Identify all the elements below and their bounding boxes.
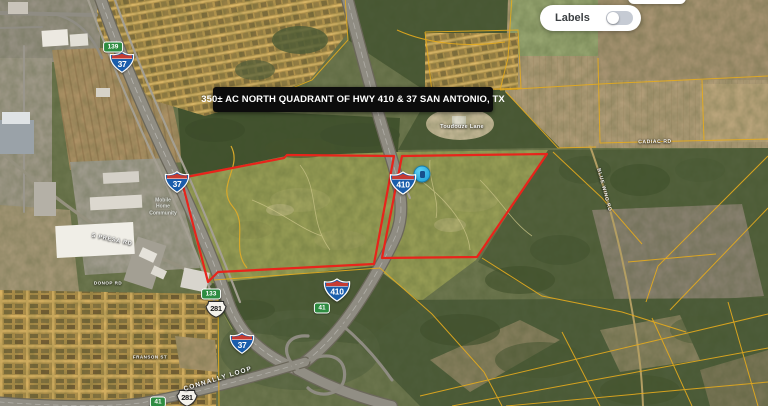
labels-toggle-switch[interactable] [606, 11, 633, 25]
satellite-map-canvas[interactable] [0, 0, 768, 406]
map-app-window: 350± AC NORTH QUADRANT OF HWY 410 & 37 S… [0, 0, 768, 406]
labels-toggle-label: Labels [555, 12, 590, 24]
labels-toggle-control[interactable]: Labels [540, 5, 641, 31]
